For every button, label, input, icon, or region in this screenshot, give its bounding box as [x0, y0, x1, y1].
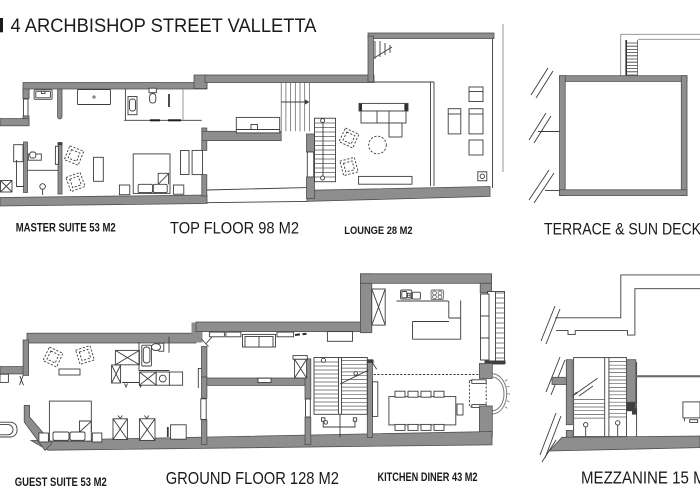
- svg-text:MASTER SUITE 53 M2: MASTER SUITE 53 M2: [16, 222, 116, 234]
- svg-text:KITCHEN DINER 43 M2: KITCHEN DINER 43 M2: [378, 470, 478, 484]
- svg-text:4 ARCHBISHOP STREET VALLETTA: 4 ARCHBISHOP STREET VALLETTA: [11, 15, 317, 37]
- svg-text:TOP FLOOR 98 M2: TOP FLOOR 98 M2: [170, 219, 299, 238]
- svg-text:GROUND FLOOR 128 M2: GROUND FLOOR 128 M2: [166, 468, 339, 488]
- svg-text:TERRACE & SUN DECK: TERRACE & SUN DECK: [544, 220, 700, 239]
- svg-text:LOUNGE 28 M2: LOUNGE 28 M2: [344, 225, 412, 237]
- svg-text:GUEST SUITE 53 M2: GUEST SUITE 53 M2: [15, 475, 107, 489]
- svg-text:MEZZANINE 15 M2: MEZZANINE 15 M2: [581, 468, 700, 488]
